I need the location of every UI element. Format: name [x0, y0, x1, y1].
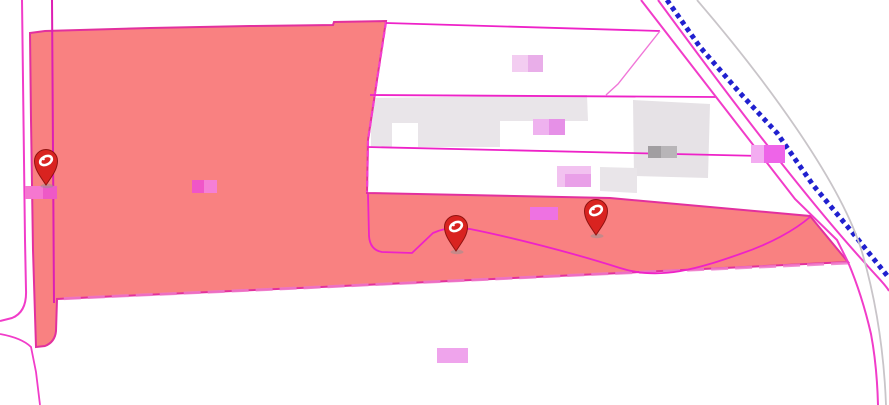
parcel-line-top: [386, 23, 660, 31]
map-label: [204, 180, 217, 193]
pin-shadow: [41, 184, 54, 188]
map-label: [512, 55, 528, 72]
map-label: [764, 145, 785, 163]
building-small: [600, 167, 637, 193]
map-label: [648, 146, 661, 158]
map-canvas[interactable]: [0, 0, 889, 405]
map-label: [437, 348, 468, 363]
terrain-line: [697, 0, 886, 405]
map-viewport: [0, 0, 889, 405]
road-edge-left-outer: [0, 0, 26, 321]
map-label: [661, 146, 677, 158]
pin-shadow: [451, 250, 464, 254]
pin-glyph-dot: [452, 224, 455, 227]
map-label: [528, 55, 543, 72]
road-corner-curve: [0, 334, 40, 405]
map-label: [565, 174, 591, 187]
map-label: [751, 145, 764, 163]
highlighted-parcel: [30, 21, 848, 347]
map-label: [25, 186, 43, 199]
parcel-line-branch: [606, 31, 660, 95]
building-block: [633, 100, 710, 178]
pin-glyph-dot: [592, 208, 595, 211]
map-label: [549, 119, 565, 135]
map-label: [530, 207, 558, 220]
pin-shadow: [591, 234, 604, 238]
map-label: [192, 180, 204, 193]
road-edge-diagonal-1: [641, 0, 878, 405]
map-label: [533, 119, 549, 135]
pin-glyph-dot: [42, 158, 45, 161]
parcel-line-mid: [370, 95, 716, 97]
